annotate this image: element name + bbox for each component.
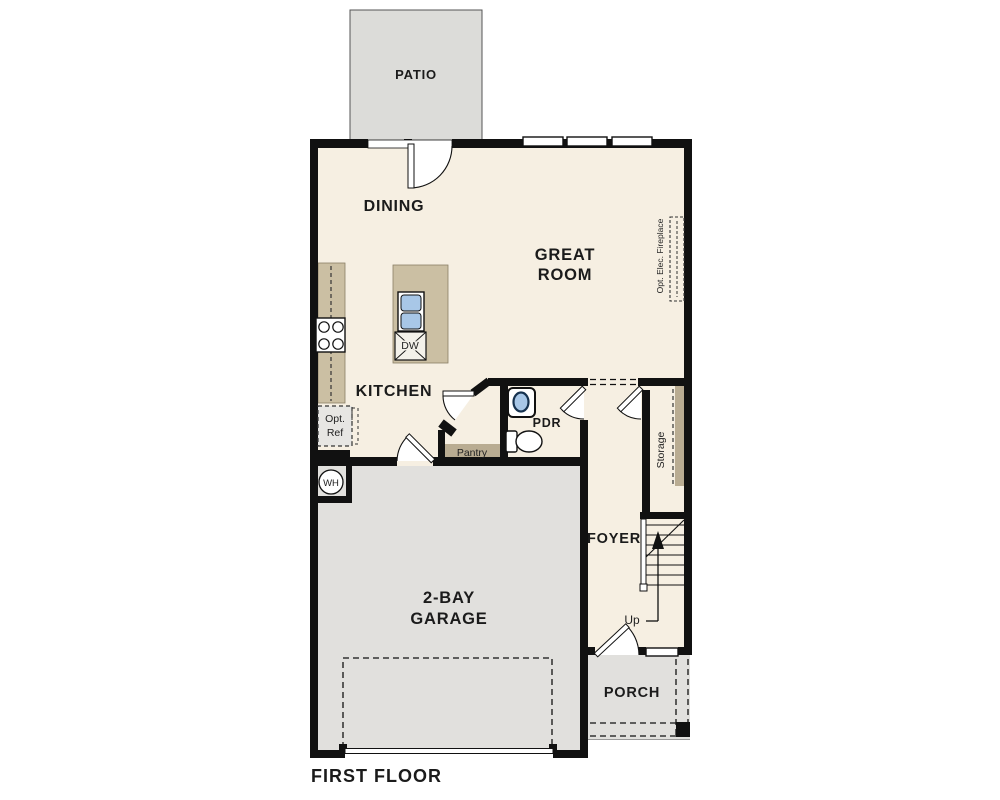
window-icon (523, 137, 563, 146)
floorplan-svg: DW Opt. Ref WH (0, 0, 1000, 800)
garage-door (345, 749, 553, 754)
foyer-label: FOYER (587, 531, 641, 547)
cased-opening (588, 378, 638, 386)
vanity-sink-icon (508, 388, 535, 417)
opt-ref-icon: Opt. Ref (318, 406, 358, 446)
garage-label-2: GARAGE (410, 610, 487, 628)
porch-label: PORCH (604, 685, 660, 701)
kitchen-label: KITCHEN (356, 383, 433, 400)
water-heater-label: WH (323, 478, 339, 489)
dishwasher-icon: DW (395, 332, 426, 360)
stair-railing (641, 519, 646, 589)
dining-label: DINING (364, 198, 425, 215)
floorplan-page: DW Opt. Ref WH (0, 0, 1000, 800)
garage-label-1: 2-BAY (423, 589, 475, 607)
window-icon (567, 137, 607, 146)
water-heater-icon: WH (319, 470, 343, 494)
pdr-label: PDR (533, 416, 562, 430)
garage-floor (318, 466, 580, 750)
patio-label: PATIO (395, 67, 437, 82)
plan-title: FIRST FLOOR (311, 766, 442, 786)
opt-ref-label-2: Ref (327, 427, 343, 439)
toilet-icon (506, 431, 542, 452)
great-room-label-2: ROOM (538, 266, 593, 284)
dishwasher-label: DW (401, 340, 419, 352)
fireplace-label: Opt. Elec. Fireplace (655, 218, 665, 293)
pantry-label: Pantry (457, 447, 488, 459)
opt-ref-label-1: Opt. (325, 413, 345, 425)
storage-label: Storage (655, 431, 667, 468)
up-label: Up (624, 613, 640, 627)
great-room-label-1: GREAT (535, 246, 596, 264)
kitchen-sink-icon (398, 292, 424, 331)
cooktop-icon (316, 318, 345, 352)
porch-post (676, 722, 690, 737)
window-icon (612, 137, 652, 146)
window-icon (646, 648, 678, 656)
